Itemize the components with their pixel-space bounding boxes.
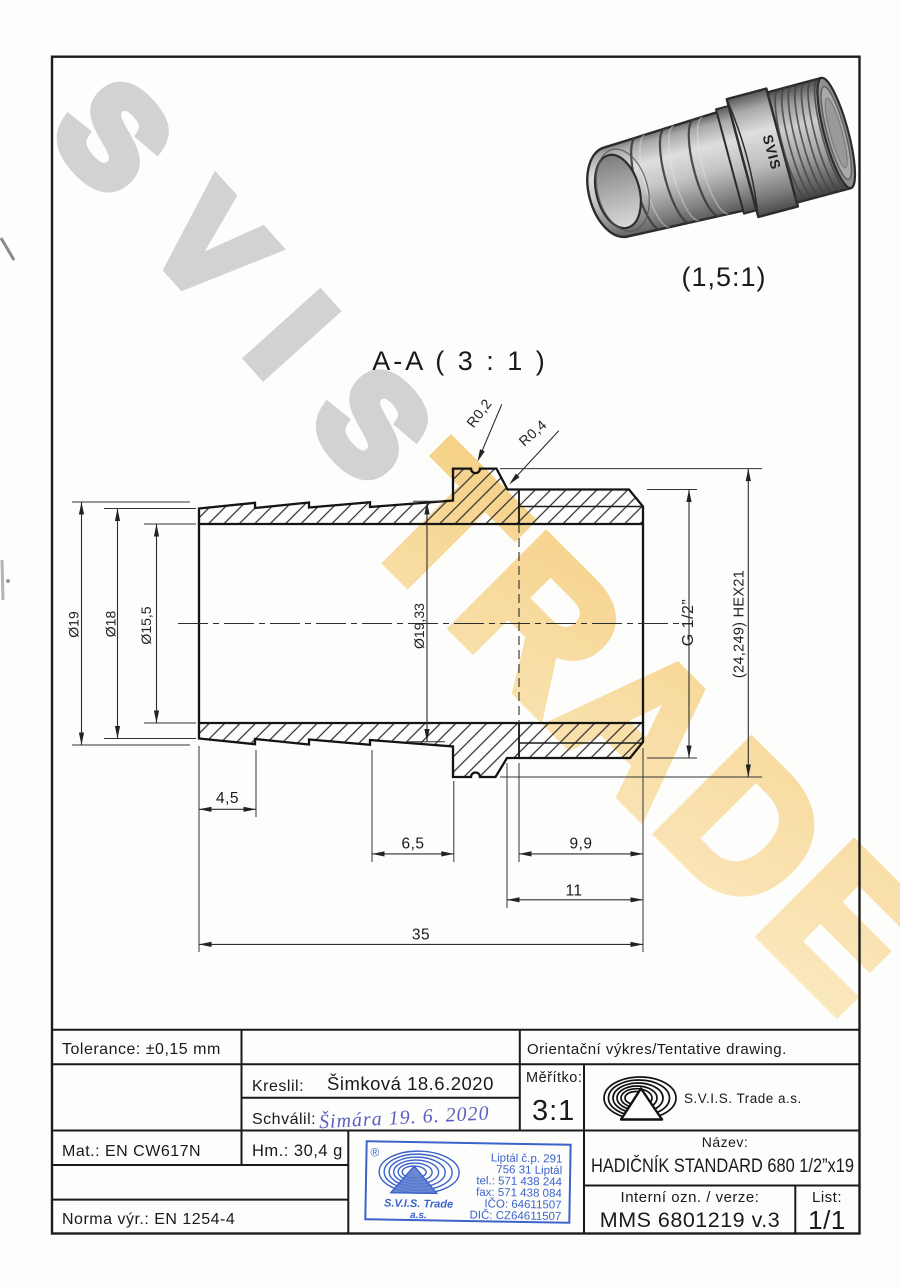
svg-text:Hm.: 30,4 g: Hm.: 30,4 g	[252, 1142, 343, 1160]
svg-text:6,5: 6,5	[401, 836, 424, 853]
svg-text:Orientační výkres/Tentative dr: Orientační výkres/Tentative drawing.	[527, 1041, 787, 1058]
svg-text:4,5: 4,5	[216, 790, 239, 807]
svg-text:Interní ozn. / verze:: Interní ozn. / verze:	[621, 1189, 760, 1206]
svg-text:MMS 6801219 v.3: MMS 6801219 v.3	[600, 1208, 780, 1232]
svg-text:(24,249) HEX21: (24,249) HEX21	[732, 570, 748, 678]
svg-text:List:: List:	[812, 1189, 842, 1206]
svg-text:HADIČNÍK STANDARD 680 1/2”x19: HADIČNÍK STANDARD 680 1/2”x19	[591, 1155, 854, 1177]
svg-text:1/1: 1/1	[808, 1205, 846, 1235]
svg-text:3:1: 3:1	[532, 1095, 575, 1127]
svg-text:Měřítko:: Měřítko:	[526, 1070, 582, 1086]
svg-text:Ø18: Ø18	[103, 611, 119, 638]
svg-text:Ø19: Ø19	[66, 611, 82, 638]
svg-text:Mat.: EN CW617N: Mat.: EN CW617N	[62, 1143, 201, 1160]
svg-text:A-A ( 3 : 1 ): A-A ( 3 : 1 )	[372, 346, 548, 376]
svg-text:11: 11	[565, 883, 582, 900]
svg-text:Schválil:: Schválil:	[252, 1111, 316, 1128]
svg-text:Tolerance: ±0,15 mm: Tolerance: ±0,15 mm	[62, 1041, 221, 1058]
svg-text:Ø19,33: Ø19,33	[411, 603, 427, 649]
svg-text:Šimková 18.6.2020: Šimková 18.6.2020	[327, 1073, 494, 1094]
svg-text:(1,5:1): (1,5:1)	[681, 262, 766, 292]
svg-text:®: ®	[370, 1145, 379, 1159]
svg-text:®: ®	[854, 924, 874, 954]
svg-text:Název:: Název:	[702, 1134, 749, 1150]
svg-text:G 1/2”: G 1/2”	[680, 599, 697, 646]
svg-text:Kreslil:: Kreslil:	[252, 1078, 304, 1095]
svg-text:DIČ: CZ64611507: DIČ: CZ64611507	[469, 1209, 561, 1224]
svg-text:Norma výr.: EN 1254-4: Norma výr.: EN 1254-4	[62, 1211, 235, 1228]
svg-text:9,9: 9,9	[569, 836, 592, 853]
svg-text:a.s.: a.s.	[410, 1210, 427, 1221]
svg-text:S.V.I.S. Trade a.s.: S.V.I.S. Trade a.s.	[684, 1091, 802, 1106]
svg-text:S.V.I.S. Trade: S.V.I.S. Trade	[384, 1198, 453, 1211]
svg-text:35: 35	[412, 927, 430, 944]
svg-text:Ø15,5: Ø15,5	[138, 606, 154, 644]
